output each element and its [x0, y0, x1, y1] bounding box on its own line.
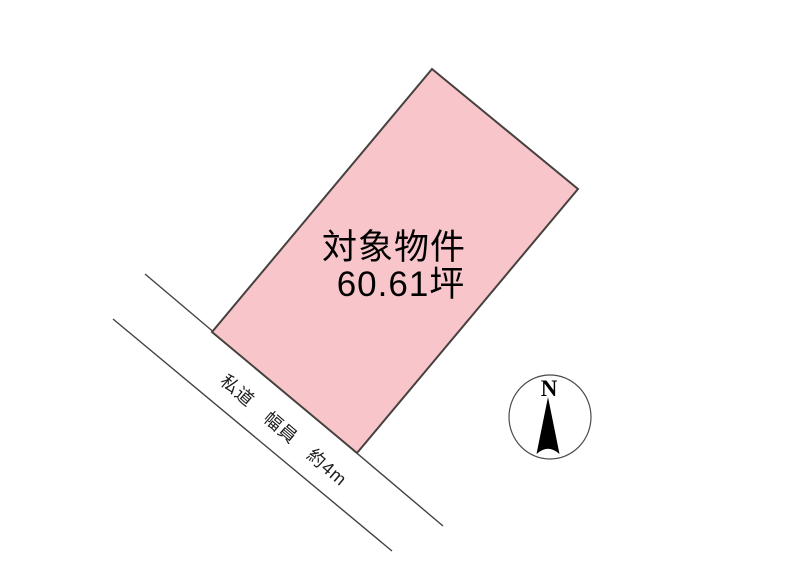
- compass: N: [509, 375, 591, 459]
- parcel-label-area: 60.61坪: [337, 265, 466, 304]
- parcel-label-name: 対象物件: [322, 228, 466, 267]
- compass-north-label: N: [541, 376, 558, 401]
- site-plan-canvas: 私道 幅員 約4m 対象物件 60.61坪 N: [0, 0, 800, 565]
- site-plan-drawing: 私道 幅員 約4m 対象物件 60.61坪 N: [0, 0, 800, 565]
